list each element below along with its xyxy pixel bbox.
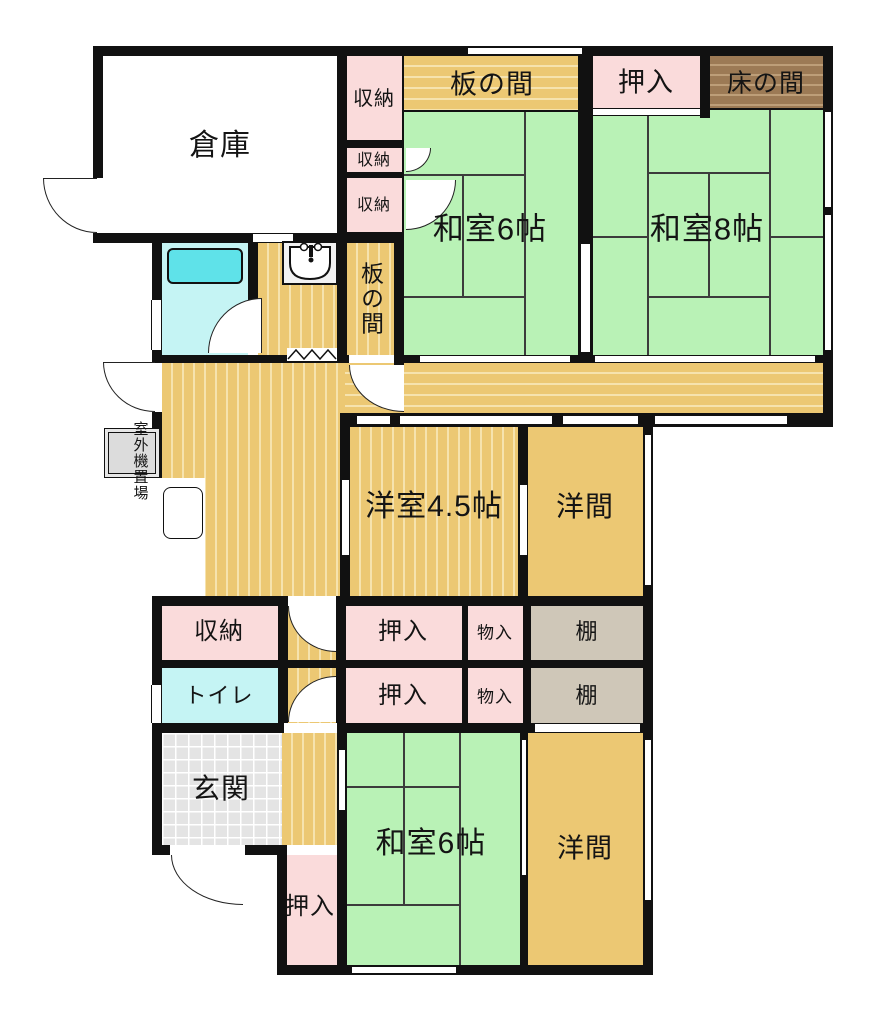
tatami-line — [769, 110, 771, 355]
wall — [336, 596, 346, 733]
tatami-line — [593, 236, 649, 238]
door-opening — [284, 723, 337, 733]
wall — [700, 46, 710, 118]
wall — [404, 110, 578, 112]
room-label: 収納 — [357, 198, 391, 214]
engawa-corridor — [345, 363, 823, 413]
room-label: 和室8帖 — [650, 214, 764, 245]
wall — [152, 596, 643, 606]
sliding-door — [338, 750, 346, 810]
wall — [523, 596, 531, 733]
room-label: 洋室4.5帖 — [365, 492, 503, 522]
wall — [710, 108, 823, 110]
room-label: 押入 — [618, 70, 674, 97]
window — [563, 415, 638, 425]
room-label: 洋間 — [556, 493, 614, 521]
wall — [277, 965, 653, 975]
room-label: 収納 — [357, 153, 391, 169]
door-swing-arc — [171, 855, 243, 905]
room-label: 物入 — [477, 625, 513, 642]
room-label: 洋間 — [557, 836, 613, 863]
room-label: 棚 — [575, 685, 598, 707]
sliding-door — [341, 480, 350, 555]
room-label: 和室6帖 — [376, 829, 487, 859]
wall — [337, 140, 404, 148]
room-label: 棚 — [575, 621, 598, 643]
cabinet — [163, 487, 203, 539]
wall — [337, 172, 404, 178]
room-label: 物入 — [477, 689, 513, 706]
room-label: 押入 — [378, 684, 428, 708]
room-label: 床の間 — [727, 72, 805, 97]
room-label: 板の間 — [359, 262, 382, 337]
wall — [93, 46, 103, 178]
window — [468, 47, 582, 55]
door-swing-arc — [43, 178, 97, 233]
bathtub — [167, 248, 243, 284]
wall — [278, 596, 288, 733]
fusuma-door — [580, 244, 591, 352]
window — [644, 435, 652, 585]
wall — [93, 46, 350, 56]
tatami-line — [404, 174, 525, 176]
door-opening — [170, 845, 245, 855]
wall — [462, 596, 468, 733]
door-opening — [288, 596, 336, 606]
tatami-line — [404, 296, 525, 298]
window — [151, 300, 162, 350]
room-label: 倉庫 — [189, 131, 251, 161]
window — [535, 723, 640, 733]
window — [357, 415, 390, 425]
wall — [337, 46, 347, 363]
room-label: 玄関 — [192, 775, 250, 803]
room-label: 押入 — [378, 620, 428, 644]
room-label: 室外機置場 — [133, 421, 148, 501]
wall — [152, 660, 643, 668]
window — [824, 215, 832, 350]
sink-icon — [282, 241, 338, 285]
window — [824, 112, 832, 207]
tatami-line — [769, 236, 823, 238]
room-label: トイレ — [184, 685, 253, 707]
window — [400, 415, 552, 425]
wall — [394, 233, 404, 363]
sliding-door — [519, 485, 528, 555]
floor-plan: 倉庫 収納 収納 収納 板の間 押入 床の間 和室6帖 和室8帖 板の間 洋室4… — [0, 0, 878, 1024]
sliding-door — [595, 355, 815, 363]
room-label: 収納 — [194, 620, 244, 644]
sliding-door — [420, 355, 570, 363]
room-label: 押入 — [285, 895, 335, 919]
door-opening — [349, 355, 394, 363]
sliding-door — [593, 108, 700, 116]
window — [655, 415, 787, 425]
window — [352, 966, 456, 974]
door-swing-arc — [103, 362, 155, 412]
wall — [248, 243, 258, 305]
room-label: 収納 — [353, 89, 395, 109]
window — [644, 740, 652, 900]
accordion-door-zigzag — [287, 348, 337, 361]
room-label: 和室6帖 — [433, 214, 547, 245]
hallway-genkan — [282, 733, 337, 845]
room-label: 板の間 — [450, 72, 534, 99]
window — [521, 740, 527, 875]
window — [151, 685, 162, 723]
tatami-line — [403, 733, 405, 906]
tatami-line — [647, 110, 649, 355]
